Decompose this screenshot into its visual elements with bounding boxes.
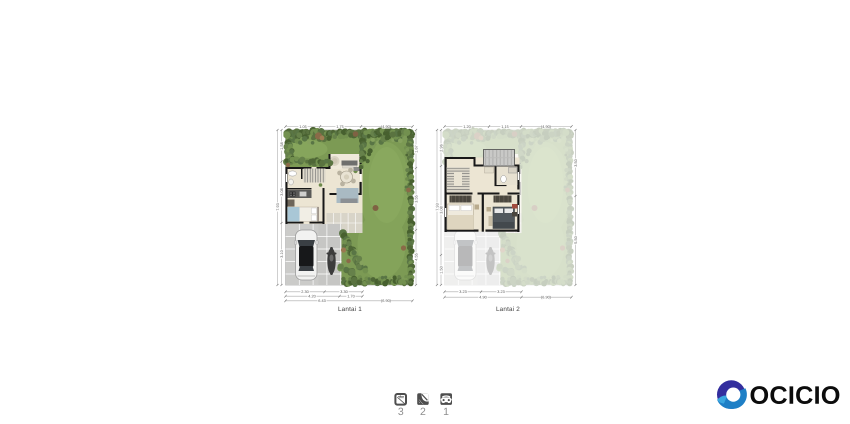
svg-text:1.50: 1.50 [439, 266, 443, 273]
svg-text:4.90: 4.90 [479, 296, 486, 300]
svg-text:(4.90): (4.90) [541, 125, 552, 129]
svg-text:5.50: 5.50 [574, 236, 578, 243]
svg-text:3.10: 3.10 [280, 250, 284, 257]
svg-text:3.23: 3.23 [497, 290, 504, 294]
svg-text:3.08: 3.08 [439, 206, 443, 213]
svg-text:1.67: 1.67 [414, 145, 418, 152]
svg-text:3.50: 3.50 [574, 159, 578, 166]
svg-text:1.58: 1.58 [280, 142, 284, 149]
svg-text:Lantai 1: Lantai 1 [338, 306, 362, 313]
svg-text:6.43: 6.43 [318, 299, 325, 303]
svg-text:3: 3 [398, 406, 404, 418]
svg-text:1.75: 1.75 [336, 125, 343, 129]
svg-text:(6.90): (6.90) [381, 299, 392, 303]
svg-text:3.23: 3.23 [459, 290, 466, 294]
svg-text:1.05: 1.05 [299, 125, 306, 129]
svg-text:(4.90): (4.90) [381, 125, 392, 129]
svg-text:1: 1 [443, 406, 449, 418]
svg-text:2: 2 [420, 406, 426, 418]
svg-text:1.15: 1.15 [501, 125, 508, 129]
svg-text:3.08: 3.08 [280, 188, 284, 195]
svg-text:4.20: 4.20 [308, 295, 315, 299]
svg-text:(6.90): (6.90) [541, 296, 552, 300]
svg-text:Lantai 2: Lantai 2 [496, 306, 520, 313]
svg-text:1.20: 1.20 [463, 125, 470, 129]
svg-text:1.70: 1.70 [347, 295, 354, 299]
svg-text:2.30: 2.30 [301, 290, 308, 294]
svg-text:7.93: 7.93 [276, 203, 280, 210]
svg-text:2.96: 2.96 [439, 144, 443, 151]
svg-text:3.30: 3.30 [340, 290, 347, 294]
svg-text:4.55: 4.55 [414, 253, 418, 260]
svg-text:3.55: 3.55 [414, 195, 418, 202]
